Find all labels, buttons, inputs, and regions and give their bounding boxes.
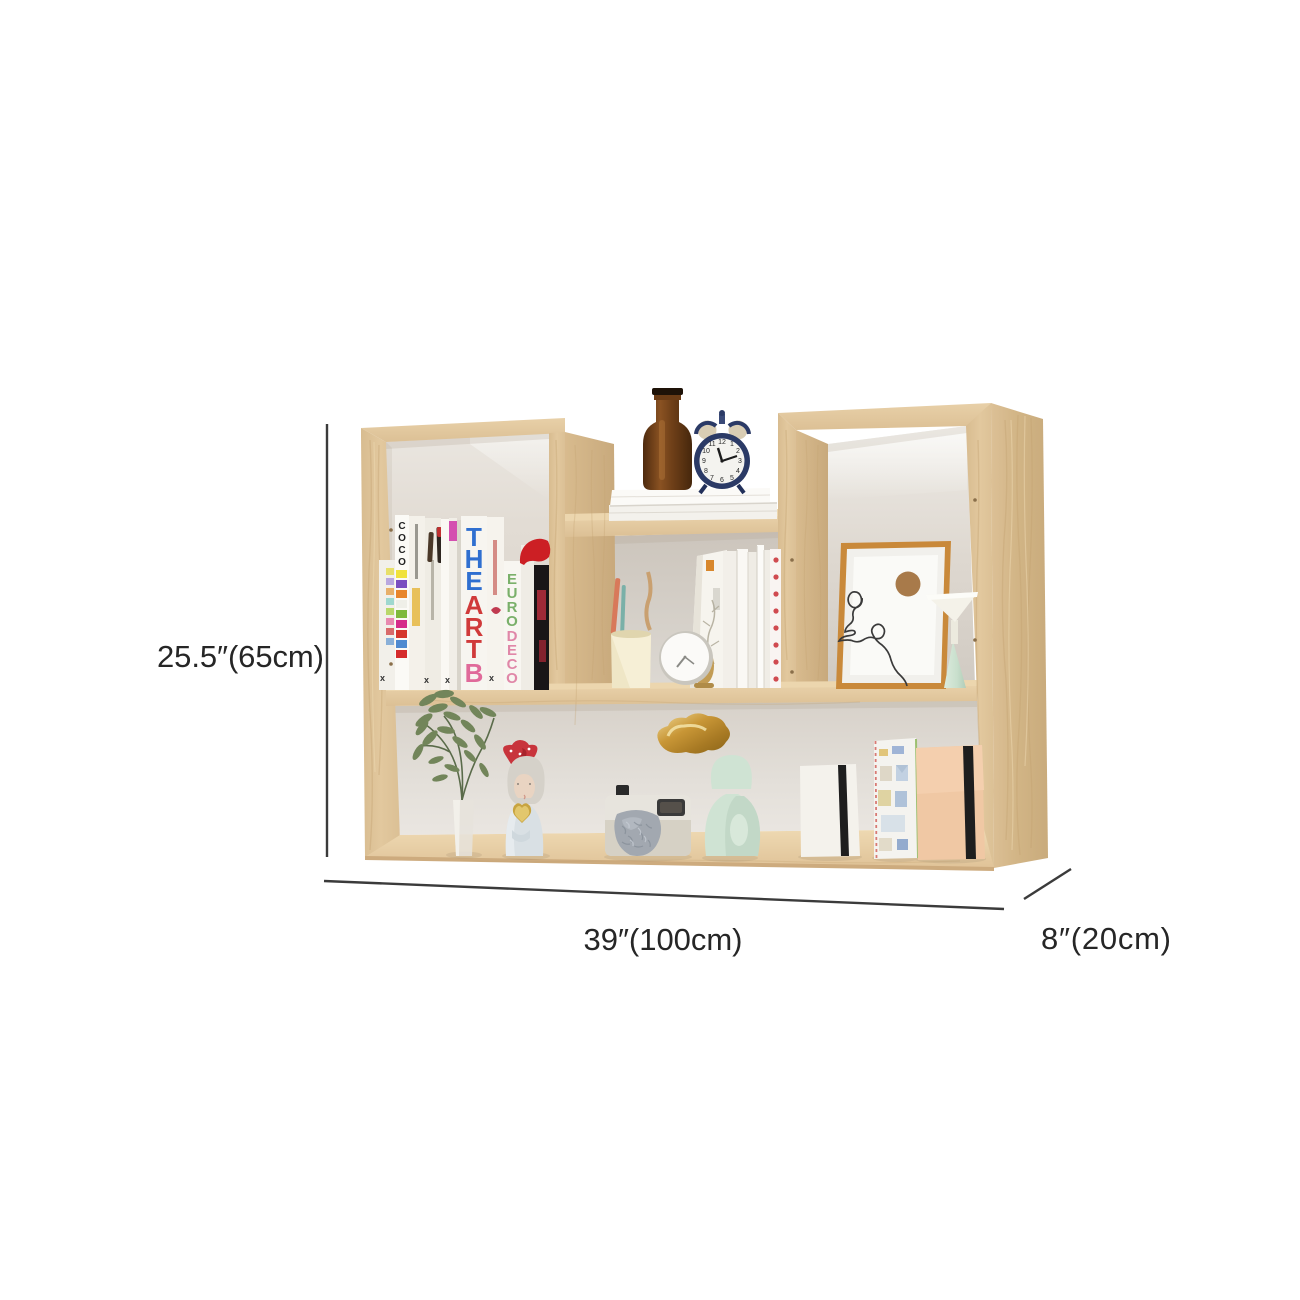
svg-text:6: 6: [720, 477, 724, 484]
svg-text:9: 9: [702, 458, 706, 465]
svg-text:10: 10: [702, 448, 710, 455]
svg-text:39″(100cm): 39″(100cm): [584, 922, 743, 957]
svg-text:C: C: [398, 521, 405, 532]
svg-text:x: x: [380, 673, 385, 683]
svg-text:x: x: [489, 673, 494, 683]
svg-text:x: x: [424, 675, 429, 685]
svg-text:11: 11: [708, 441, 715, 448]
svg-text:B: B: [465, 658, 484, 688]
svg-text:x: x: [445, 675, 450, 685]
svg-text:C: C: [398, 545, 405, 556]
svg-text:3: 3: [738, 458, 742, 465]
svg-text:7: 7: [710, 475, 714, 482]
svg-text:25.5″(65cm): 25.5″(65cm): [157, 639, 324, 674]
svg-text:2: 2: [736, 448, 740, 455]
svg-text:1: 1: [730, 441, 734, 448]
svg-text:4: 4: [736, 468, 740, 475]
svg-text:5: 5: [730, 475, 734, 482]
svg-text:8″(20cm): 8″(20cm): [1041, 921, 1171, 956]
svg-text:8: 8: [704, 468, 708, 475]
svg-text:O: O: [506, 670, 518, 687]
svg-text:O: O: [398, 533, 406, 544]
svg-text:12: 12: [718, 439, 726, 446]
svg-text:O: O: [398, 557, 406, 568]
